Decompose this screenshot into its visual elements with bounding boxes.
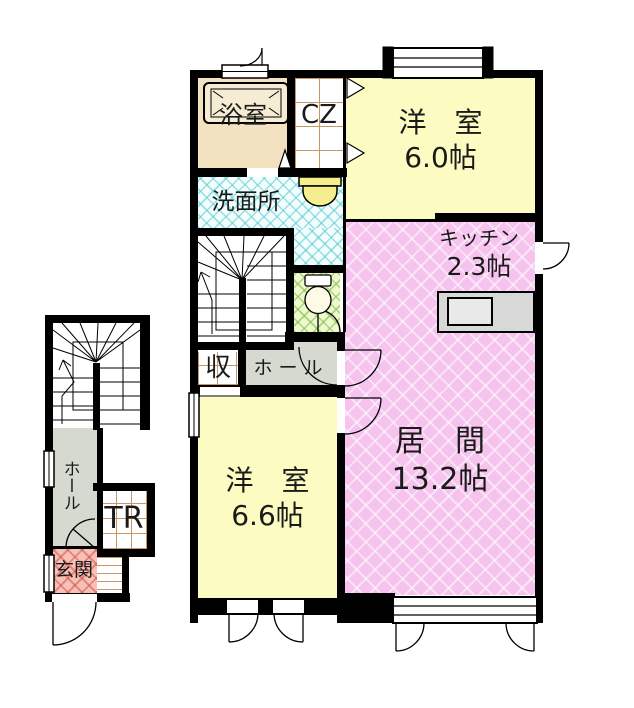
label-bedroom-a: 洋 室 6.0帖 [346,96,535,184]
door-arc-entry [53,602,96,645]
entry-door-opening [52,594,97,602]
wall-segment [287,78,295,175]
wall-segment [93,483,155,491]
wall-segment [285,332,345,342]
label-storage: 収 [198,350,238,386]
kitchen-sink [447,297,493,326]
wall-segment [190,598,345,615]
label-living: 居 間 13.2帖 [350,418,530,503]
wall-segment [337,593,395,623]
kitchen-door-opening [535,242,543,274]
terrace-door-opening [227,600,258,613]
floor-plan: 浴室 CZ 洋 室 6.0帖 洗面所 キッチン 2.3帖 居 間 13.2帖 収… [0,0,634,708]
label-hall-entry: ホール [57,438,81,533]
label-cz: CZ [295,100,343,130]
room-toilet [294,273,340,332]
label-hall-main: ホール [246,356,336,382]
wall-segment [147,483,155,557]
door-arc-bedroom-b-terrace [229,613,303,642]
bedroom-door-opening [337,398,345,433]
wall-segment [140,315,150,430]
stair-newel-wall [93,363,100,430]
door-arc-living-terrace [396,623,534,651]
wall-segment [345,219,437,222]
wall-segment [45,315,150,323]
label-bathroom: 浴室 [198,100,288,130]
stair-newel-wall [239,278,246,342]
wall-segment [190,228,294,236]
room-washroom-strip [294,228,343,265]
wall-segment [435,213,543,222]
wall-segment [292,265,346,273]
label-washroom: 洗面所 [196,188,296,216]
wall-segment [535,70,543,623]
label-kitchen: キッチン 2.3帖 [424,224,534,284]
storage-opening [200,387,240,397]
window-living-bottom [393,597,537,623]
hall-door-opening [337,351,345,385]
label-bedroom-b: 洋 室 6.6帖 [198,450,337,545]
wall-segment [286,236,294,342]
terrace-door-opening [273,600,304,613]
label-tr: TR [101,493,147,545]
wall-segment [53,546,97,549]
label-entry: 玄関 [50,558,98,584]
entry-step [97,557,122,593]
wall-segment [190,70,543,78]
bathroom-door-opening [247,168,278,177]
door-arc-kitchen [543,243,569,269]
